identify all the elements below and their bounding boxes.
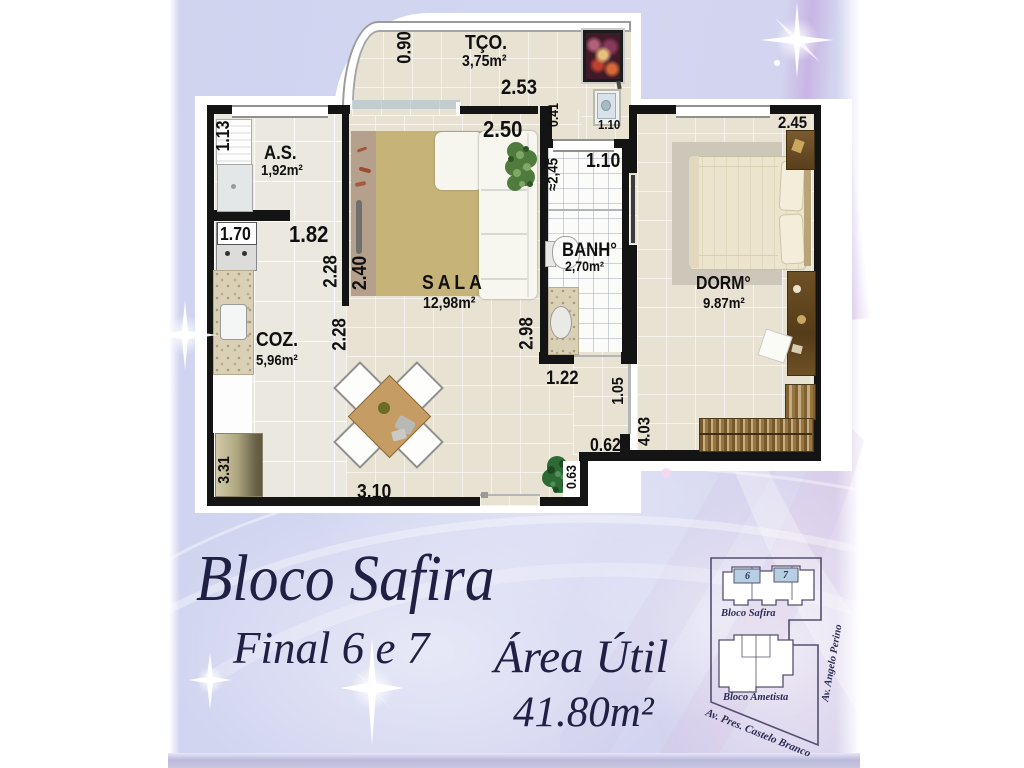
svg-text:Bloco Ametista: Bloco Ametista [722,692,788,703]
svg-text:6: 6 [745,571,750,582]
svg-text:Av. Pres. Castelo Branco: Av. Pres. Castelo Branco [703,706,813,760]
svg-text:Bloco Safira: Bloco Safira [720,608,776,619]
svg-text:Av. Angelo Perino: Av. Angelo Perino [820,624,845,704]
